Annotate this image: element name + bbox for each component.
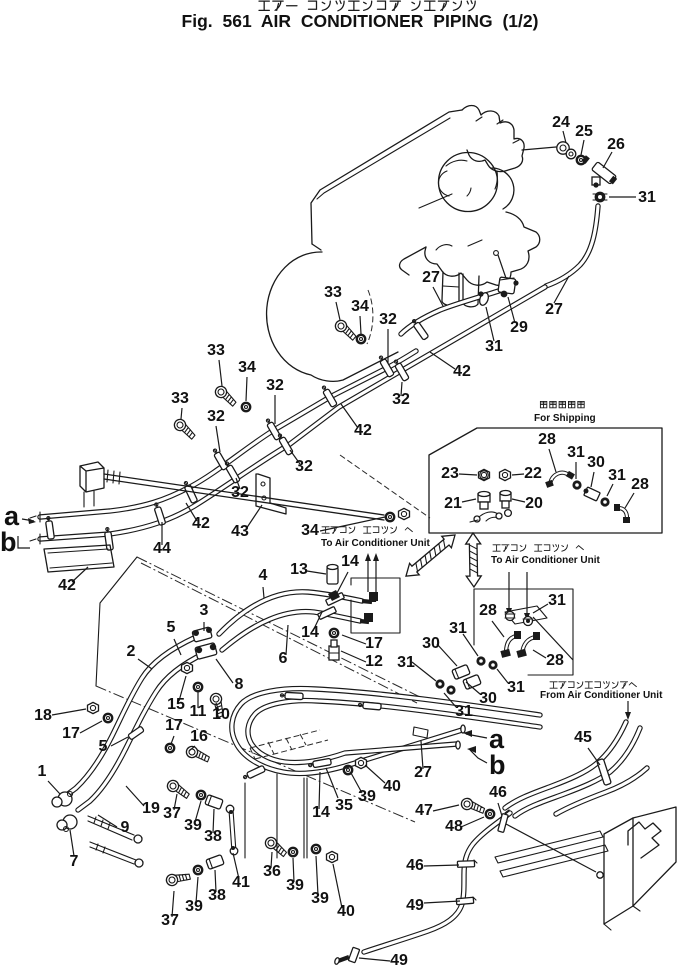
svg-text:21: 21 xyxy=(444,495,462,512)
svg-text:49: 49 xyxy=(406,897,424,914)
svg-text:12: 12 xyxy=(365,653,383,670)
svg-text:46: 46 xyxy=(406,857,424,874)
svg-text:40: 40 xyxy=(337,903,355,920)
svg-text:31: 31 xyxy=(548,592,566,609)
svg-text:41: 41 xyxy=(232,874,250,891)
svg-text:49: 49 xyxy=(390,952,408,969)
svg-text:19: 19 xyxy=(142,800,160,817)
svg-text:9: 9 xyxy=(121,819,130,836)
svg-text:39: 39 xyxy=(184,817,202,834)
svg-text:37: 37 xyxy=(163,805,181,822)
svg-text:18: 18 xyxy=(34,707,52,724)
svg-text:Fig. 561 AIR CONDITIONER PI: Fig. 561 AIR CONDITIONER PIPING (1/2) xyxy=(182,11,539,31)
svg-text:34: 34 xyxy=(351,298,369,315)
svg-text:5: 5 xyxy=(167,619,176,636)
svg-text:7: 7 xyxy=(70,853,79,870)
svg-text:36: 36 xyxy=(263,863,281,880)
svg-text:32: 32 xyxy=(266,377,284,394)
svg-text:34: 34 xyxy=(301,522,319,539)
svg-text:32: 32 xyxy=(392,391,410,408)
svg-text:33: 33 xyxy=(324,284,342,301)
svg-text:To Air Conditioner Unit: To Air Conditioner Unit xyxy=(321,538,431,549)
svg-text:28: 28 xyxy=(546,652,564,669)
svg-text:39: 39 xyxy=(185,898,203,915)
svg-text:24: 24 xyxy=(552,114,570,131)
svg-text:42: 42 xyxy=(58,577,76,594)
svg-text:10: 10 xyxy=(212,706,230,723)
svg-text:28: 28 xyxy=(479,602,497,619)
svg-text:30: 30 xyxy=(479,690,497,707)
svg-text:To Air Conditioner Unit: To Air Conditioner Unit xyxy=(491,555,601,566)
svg-text:33: 33 xyxy=(207,342,225,359)
svg-text:47: 47 xyxy=(415,802,433,819)
svg-text:45: 45 xyxy=(574,729,592,746)
svg-text:39: 39 xyxy=(311,890,329,907)
svg-text:25: 25 xyxy=(575,123,593,140)
svg-text:14: 14 xyxy=(341,553,359,570)
svg-text:26: 26 xyxy=(607,136,625,153)
svg-text:For Shipping: For Shipping xyxy=(534,413,596,424)
svg-text:23: 23 xyxy=(441,465,459,482)
svg-text:31: 31 xyxy=(449,620,467,637)
svg-text:31: 31 xyxy=(608,467,626,484)
svg-text:b: b xyxy=(489,750,506,780)
svg-text:29: 29 xyxy=(510,319,528,336)
svg-text:28: 28 xyxy=(538,431,556,448)
svg-text:22: 22 xyxy=(524,465,542,482)
svg-text:27: 27 xyxy=(414,764,432,781)
svg-text:8: 8 xyxy=(235,676,244,693)
svg-text:3: 3 xyxy=(200,602,209,619)
svg-text:32: 32 xyxy=(231,484,249,501)
svg-text:31: 31 xyxy=(638,189,656,206)
svg-text:33: 33 xyxy=(171,390,189,407)
svg-text:31: 31 xyxy=(397,654,415,671)
svg-text:17: 17 xyxy=(165,717,183,734)
svg-text:30: 30 xyxy=(587,454,605,471)
svg-text:42: 42 xyxy=(192,515,210,532)
svg-text:27: 27 xyxy=(422,269,440,286)
svg-text:32: 32 xyxy=(379,311,397,328)
svg-text:35: 35 xyxy=(335,797,353,814)
svg-text:15: 15 xyxy=(167,696,185,713)
svg-text:38: 38 xyxy=(204,828,222,845)
svg-text:17: 17 xyxy=(62,725,80,742)
svg-text:31: 31 xyxy=(485,338,503,355)
svg-text:31: 31 xyxy=(455,703,473,720)
svg-text:42: 42 xyxy=(453,363,471,380)
svg-text:1: 1 xyxy=(38,763,47,780)
svg-text:32: 32 xyxy=(207,408,225,425)
svg-text:40: 40 xyxy=(383,778,401,795)
svg-text:30: 30 xyxy=(422,635,440,652)
svg-text:34: 34 xyxy=(238,359,256,376)
svg-text:38: 38 xyxy=(208,887,226,904)
svg-text:43: 43 xyxy=(231,523,249,540)
svg-text:6: 6 xyxy=(279,650,288,667)
svg-text:32: 32 xyxy=(295,458,313,475)
svg-text:46: 46 xyxy=(489,784,507,801)
svg-text:39: 39 xyxy=(358,788,376,805)
svg-text:From Air Conditioner Unit: From Air Conditioner Unit xyxy=(540,690,663,701)
svg-text:11: 11 xyxy=(190,703,207,720)
svg-text:28: 28 xyxy=(631,476,649,493)
svg-text:2: 2 xyxy=(127,643,136,660)
svg-text:20: 20 xyxy=(525,495,543,512)
svg-text:48: 48 xyxy=(445,818,463,835)
svg-text:13: 13 xyxy=(290,561,308,578)
svg-text:42: 42 xyxy=(354,422,372,439)
svg-text:14: 14 xyxy=(301,624,319,641)
svg-text:5: 5 xyxy=(99,738,108,755)
svg-text:39: 39 xyxy=(286,877,304,894)
svg-text:37: 37 xyxy=(161,912,179,929)
svg-text:14: 14 xyxy=(312,804,330,821)
svg-text:17: 17 xyxy=(365,635,383,652)
svg-text:16: 16 xyxy=(190,728,208,745)
svg-text:4: 4 xyxy=(259,567,268,584)
svg-text:27: 27 xyxy=(545,301,563,318)
svg-text:31: 31 xyxy=(507,679,525,696)
svg-text:31: 31 xyxy=(567,444,585,461)
svg-text:44: 44 xyxy=(153,540,171,557)
svg-text:b: b xyxy=(0,527,17,557)
